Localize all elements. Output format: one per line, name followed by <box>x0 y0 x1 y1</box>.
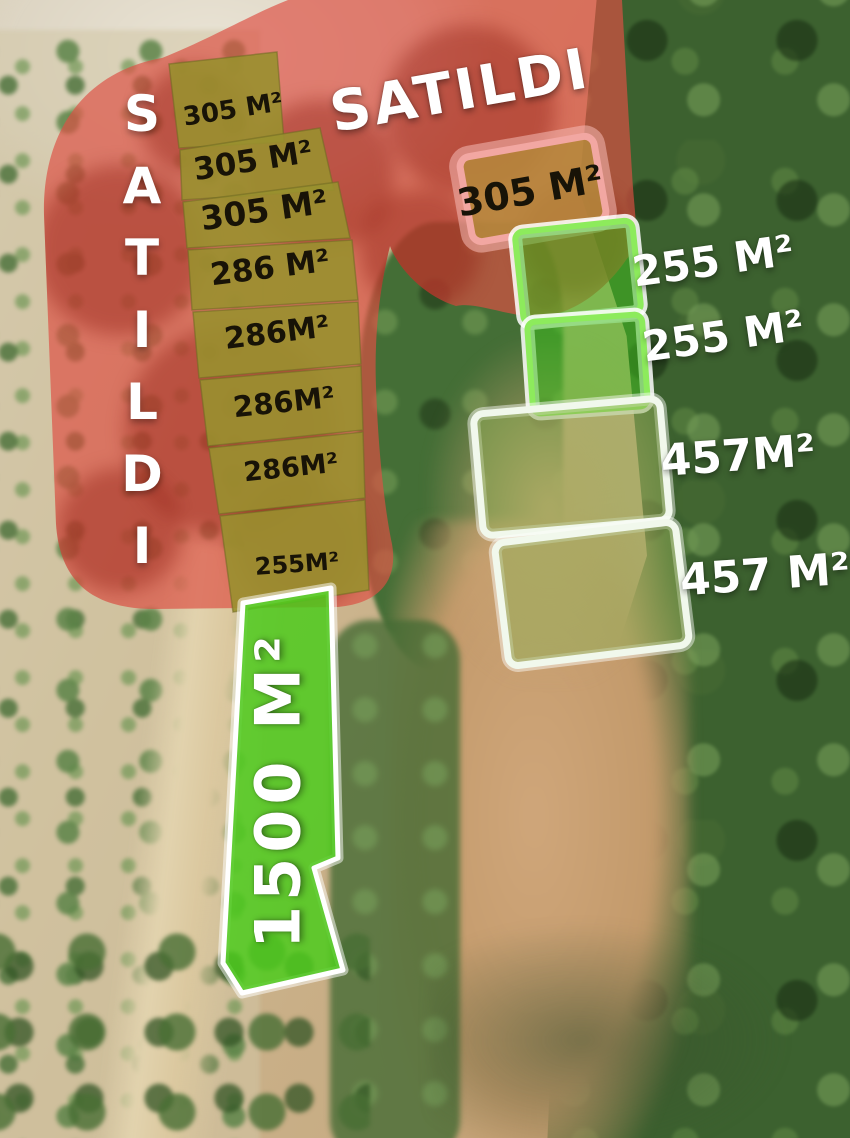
available-strip-label: 1500 M² <box>242 631 315 949</box>
satildi-letter: A <box>110 150 174 222</box>
satildi-letter: I <box>110 510 174 582</box>
available-plot-shape-3 <box>473 398 670 536</box>
satildi-letter: T <box>110 222 174 294</box>
satildi-letter: I <box>110 294 174 366</box>
sold-plot-label-8: 255M² <box>254 547 340 581</box>
available-plot-label-3: 457M² <box>659 425 817 487</box>
available-plot-shape-4 <box>494 521 690 666</box>
aerial-plot-map: S A T I L D I SATILDI 305 M² 305 M² 305 … <box>0 0 850 1138</box>
satildi-letter: S <box>110 78 174 150</box>
satildi-letter: D <box>110 438 174 510</box>
available-plot-shape-1 <box>515 220 642 324</box>
satildi-vertical-label: S A T I L D I <box>110 78 174 582</box>
satildi-letter: L <box>110 366 174 438</box>
